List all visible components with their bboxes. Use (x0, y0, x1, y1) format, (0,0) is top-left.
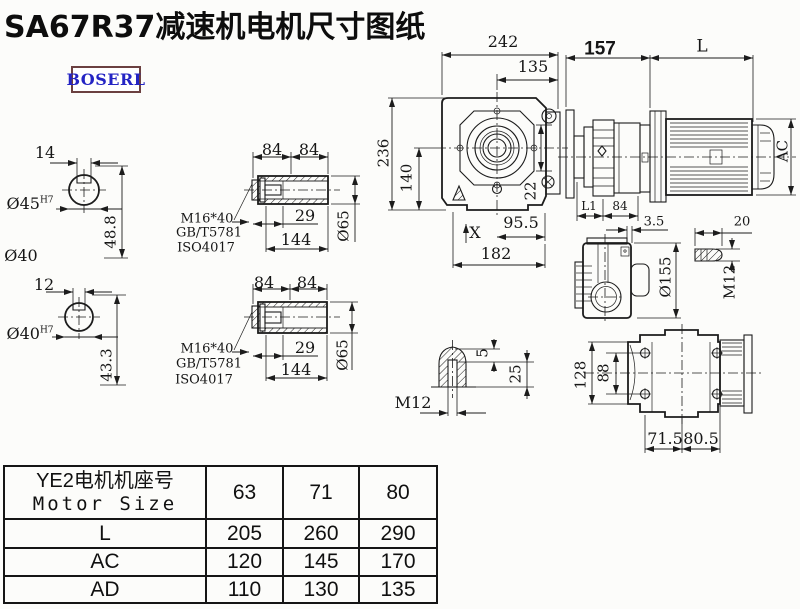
table-frame-size-63: 63 (206, 466, 283, 519)
motor-assembly-view (558, 55, 796, 221)
table-cell: 130 (283, 576, 359, 603)
dim-front-base-label: 182 (481, 246, 512, 262)
dim-stud-thread-label: M12 (723, 265, 738, 299)
dim-key-width-2-label: 12 (34, 277, 54, 293)
dim-hollow2-bore-len-label: 29 (295, 340, 315, 356)
dim-plug-thread-depth-label: 25 (509, 364, 524, 383)
table-header-motor-size: YE2电机机座号 Motor Size (4, 466, 206, 519)
table-row-AD: AD 110 130 135 (4, 576, 437, 603)
dim-motor-length-label: L (696, 39, 707, 56)
dim-hollow2-total-len-label: 144 (281, 362, 312, 378)
note-hollow1-bolt-label: M16*40 (181, 213, 234, 226)
table-cell: 205 (206, 519, 283, 548)
table-cell: 135 (359, 576, 437, 603)
dim-hollow1-outer-dia-label: Ø65 (337, 210, 352, 241)
mount-position-mark: X (469, 225, 480, 241)
dim-hollow1-bore-len-label: 29 (295, 208, 315, 224)
note-hollow2-gb-label: GB/T5781 (176, 358, 242, 371)
table-row-label: AC (4, 548, 206, 576)
table-header-en: Motor Size (5, 493, 205, 516)
dim-plug-thread-label: M12 (395, 395, 432, 411)
table-row-L: L 205 260 290 (4, 519, 437, 548)
dim-side-lip-gap-label: 3.5 (644, 216, 665, 229)
dim-motor-l1-label: L1 (581, 200, 597, 212)
dim-stud-length-label: 20 (734, 216, 751, 229)
table-row-AC: AC 120 145 170 (4, 548, 437, 576)
dim-hollow2-len-b-label: 84 (297, 275, 317, 291)
dim-depth-1-label: 48.8 (104, 215, 119, 248)
brand-logo-text: BOSERL (66, 70, 145, 89)
note-hollow1-iso-label: ISO4017 (177, 242, 235, 255)
dim-stage-length-label: 157 (584, 40, 616, 59)
motor-size-table: YE2电机机座号 Motor Size 63 71 80 L 205 260 2… (3, 465, 438, 604)
dim-side-housing-dia-label: Ø155 (659, 257, 674, 298)
dim-front-foot-a-label: 95.5 (503, 215, 539, 231)
table-cell: 145 (283, 548, 359, 576)
dim-front-axis-height-label: 140 (400, 164, 415, 193)
dim-front-flange-offset-label: 135 (518, 59, 549, 75)
dim-hollow1-len-a-label: 84 (262, 142, 282, 158)
dim-stub-dia-label: Ø40 (4, 248, 37, 264)
dim-front-lip-label: 22 (524, 181, 539, 200)
table-row-label: AD (4, 576, 206, 603)
table-cell: 290 (359, 519, 437, 548)
dim-plug-tip-depth-label: 5 (476, 348, 491, 358)
dim-bore-dia-1-label: Ø45H7 (6, 196, 53, 212)
page-title: SA67R37减速机电机尺寸图纸 (4, 2, 425, 46)
note-hollow2-iso-label: ISO4017 (175, 374, 233, 387)
dim-key-width-1-label: 14 (35, 145, 55, 161)
table-cell: 260 (283, 519, 359, 548)
dim-bore-dia-2-label: Ø40H7 (6, 326, 53, 342)
dim-hollow2-len-a-label: 84 (254, 275, 274, 291)
dim-rear-bolt-span-label: 88 (597, 363, 612, 382)
note-hollow2-bolt-label: M16*40 (181, 343, 234, 356)
dim-hollow1-len-b-label: 84 (299, 142, 319, 158)
dim-hollow2-outer-dia-label: Ø65 (336, 339, 351, 370)
table-cell: 110 (206, 576, 283, 603)
dim-rear-height-label: 128 (574, 361, 589, 390)
drawing-sheet: SA67R37减速机电机尺寸图纸 BOSERL (0, 0, 800, 609)
table-frame-size-80: 80 (359, 466, 437, 519)
dim-front-width-label: 242 (488, 34, 519, 50)
dim-rear-foot-b-label: 80.5 (683, 431, 719, 447)
note-hollow1-gb-label: GB/T5781 (176, 227, 242, 240)
table-frame-size-71: 71 (283, 466, 359, 519)
dim-motor-dia-label: AC (776, 140, 791, 162)
table-row-label: L (4, 519, 206, 548)
brand-logo: BOSERL (71, 66, 141, 93)
dim-hollow1-total-len-label: 144 (281, 232, 312, 248)
dim-depth-2-label: 43.3 (100, 348, 115, 381)
dim-front-height-label: 236 (377, 139, 392, 168)
table-cell: 170 (359, 548, 437, 576)
dim-motor-84-label: 84 (612, 200, 627, 212)
table-cell: 120 (206, 548, 283, 576)
dim-rear-foot-a-label: 71.5 (647, 431, 683, 447)
table-header-cn: YE2电机机座号 (5, 469, 205, 493)
